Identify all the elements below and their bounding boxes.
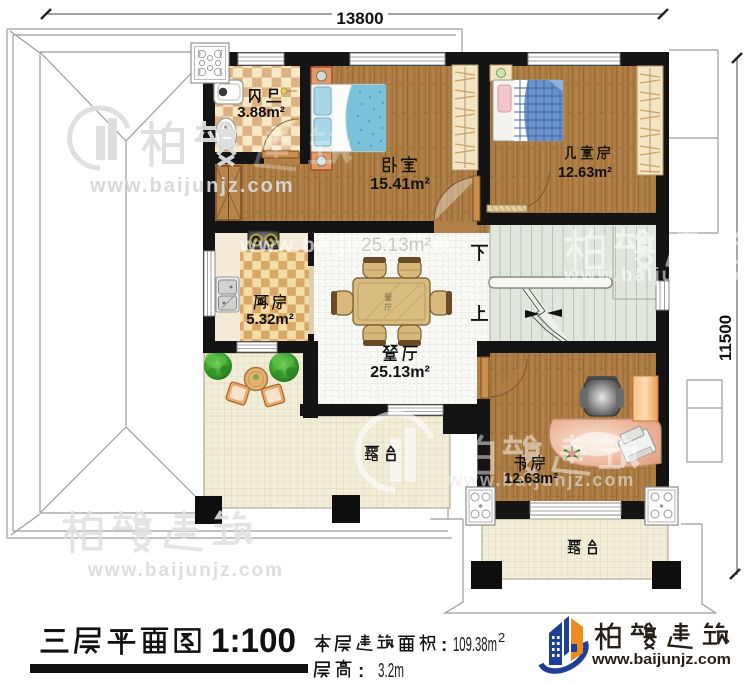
svg-text:25.13m²: 25.13m² [370,364,430,381]
svg-text:11500: 11500 [716,315,735,361]
svg-text:12.63m²: 12.63m² [504,471,558,487]
svg-text:www.baijunjz.com: www.baijunjz.com [563,265,750,286]
svg-text:12.63m²: 12.63m² [558,165,612,181]
svg-text:13800: 13800 [336,9,383,28]
svg-text:109.38m: 109.38m [453,634,497,656]
svg-text:2: 2 [498,630,505,645]
svg-text:3.2m: 3.2m [378,660,404,682]
svg-text:www.baijunjz.com: www.baijunjz.com [87,560,284,581]
svg-text::: : [441,635,447,656]
svg-text:5.32m²: 5.32m² [246,311,294,328]
svg-text:www.baijunjz.com: www.baijunjz.com [89,175,295,197]
svg-text::: : [358,661,364,682]
svg-text:3.88m²: 3.88m² [237,104,285,121]
svg-text:25.13m²: 25.13m² [361,235,431,256]
svg-text:1:100: 1:100 [211,622,296,660]
svg-text:www.baijunjz.com: www.baijunjz.com [591,651,731,668]
svg-text:15.41m²: 15.41m² [370,176,430,193]
